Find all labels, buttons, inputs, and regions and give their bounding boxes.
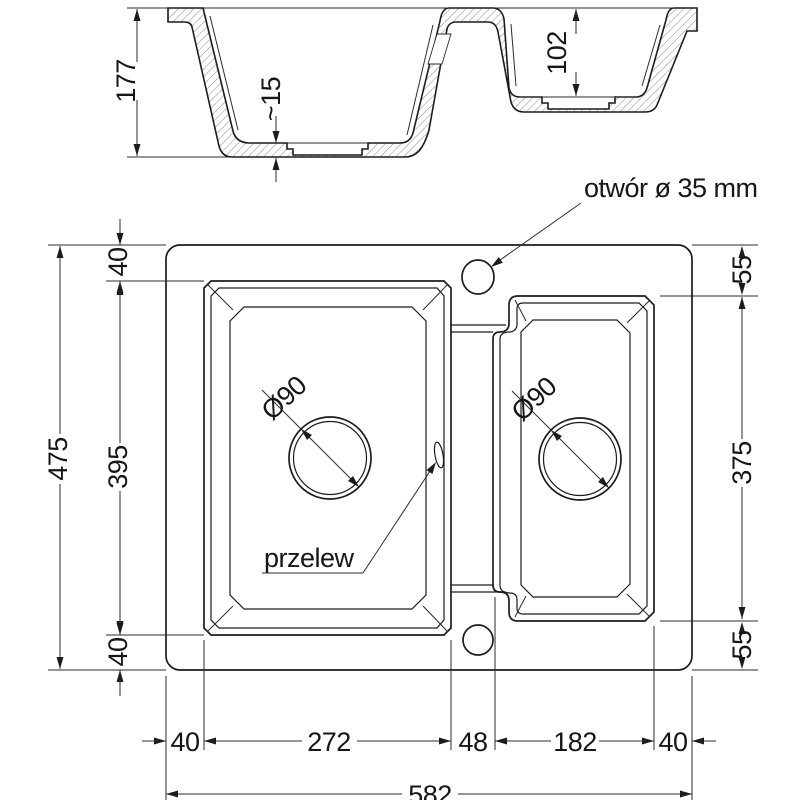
dim-label-55-bottom: 55: [727, 630, 757, 659]
faucet-hole: [462, 260, 494, 294]
dim-label-395: 395: [103, 445, 133, 489]
overflow-hole-section: [428, 34, 451, 64]
dim-label-272: 272: [307, 727, 351, 757]
dim-label-102: 102: [542, 31, 572, 75]
accessory-hole: [463, 625, 493, 655]
dims-right: 55 375 55: [660, 245, 758, 670]
bowl2-left-bevel-line: [511, 24, 516, 86]
dim-label-40-bottom: 40: [103, 637, 133, 666]
plan-view: Ø90 Ø90 przelew otwór ø 35 mm: [43, 173, 758, 800]
dim-label-582: 582: [408, 780, 452, 800]
dim-label-55-top: 55: [727, 255, 757, 284]
section-view: 177 102 ~15: [111, 8, 697, 182]
dim-label-48: 48: [458, 727, 487, 757]
sink-technical-drawing: 177 102 ~15: [0, 0, 800, 800]
label-otwor: otwór ø 35 mm: [584, 173, 758, 203]
dim-label-40-top: 40: [103, 247, 133, 276]
dim-label-475: 475: [43, 437, 73, 481]
divider: [451, 325, 506, 592]
sink-outer-edge: [166, 245, 692, 670]
section-profile: [168, 8, 697, 157]
label-przelew: przelew: [264, 543, 355, 573]
dim-label-177: 177: [111, 59, 141, 103]
dims-left: 475 40 395 40: [43, 219, 204, 696]
dim-left-drain: Ø90: [256, 370, 362, 489]
right-bowl: [493, 296, 654, 621]
dim-label-182: 182: [553, 727, 597, 757]
dim-section-floor-thickness: ~15: [256, 77, 286, 182]
faucet-annotation: otwór ø 35 mm: [489, 173, 758, 270]
dim-label-15: ~15: [256, 77, 286, 121]
dim-label-40-right: 40: [658, 727, 687, 757]
dim-section-bowl2-depth: 102: [542, 9, 580, 96]
left-bowl: [204, 281, 451, 635]
label-drain-right: Ø90: [506, 371, 563, 427]
dim-section-total-height: 177: [111, 9, 141, 156]
dim-label-375: 375: [727, 441, 757, 485]
dim-label-40-left: 40: [170, 727, 199, 757]
label-drain-left: Ø90: [256, 370, 313, 426]
